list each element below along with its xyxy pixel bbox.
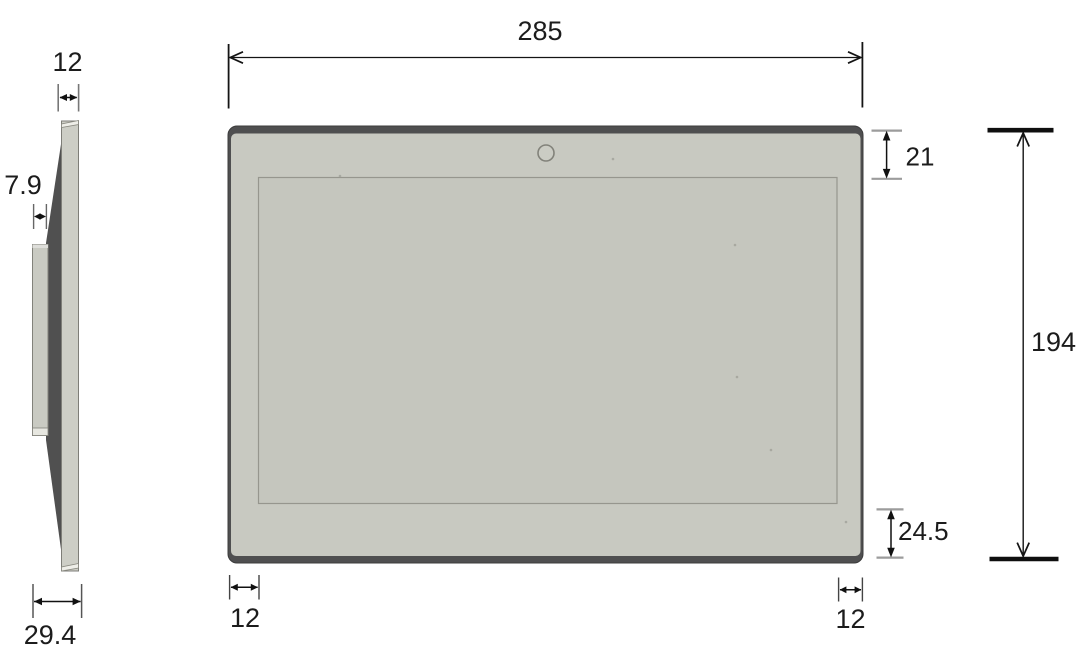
speck bbox=[734, 244, 737, 247]
dim-overall-depth-arrow-left bbox=[34, 598, 42, 606]
dim-overall-depth: 29.4 bbox=[24, 584, 82, 650]
speck bbox=[612, 158, 615, 161]
dim-side-thickness: 12 bbox=[52, 47, 82, 112]
screen-area bbox=[259, 178, 838, 504]
drawing-canvas: 12 7.9 29.4 bbox=[0, 0, 1080, 657]
dim-side-thickness-arrow-left bbox=[60, 94, 68, 101]
side-back-wedge bbox=[46, 131, 63, 564]
dim-rear-protrusion: 7.9 bbox=[4, 170, 46, 229]
dim-bottom-bezel-arrow-down bbox=[887, 548, 895, 558]
dim-height-label: 194 bbox=[1031, 327, 1076, 357]
dim-bottom-bezel-arrow-up bbox=[887, 510, 895, 520]
dim-bl-label: 12 bbox=[230, 603, 260, 633]
dim-side-thickness-arrow-right bbox=[70, 94, 78, 101]
speck bbox=[770, 449, 773, 452]
speck bbox=[339, 175, 342, 178]
dim-overall-depth-label: 29.4 bbox=[24, 620, 77, 650]
dim-top-bezel: 21 bbox=[872, 131, 935, 179]
dim-bottom-bezel-label: 24.5 bbox=[898, 516, 949, 546]
dim-side-thickness-label: 12 bbox=[52, 47, 82, 77]
dim-br-arrow-right bbox=[855, 586, 862, 593]
dim-top-bezel-arrow-down bbox=[883, 169, 891, 179]
dim-rear-protrusion-label: 7.9 bbox=[4, 170, 42, 200]
dim-br-arrow-left bbox=[840, 586, 847, 593]
side-rear-module bbox=[33, 245, 49, 436]
dim-bl-arrow-left bbox=[231, 584, 238, 591]
dim-front-width-label: 285 bbox=[517, 16, 562, 46]
dim-bottom-right-margin: 12 bbox=[835, 578, 865, 635]
dim-overall-depth-arrow-right bbox=[73, 598, 81, 606]
speck bbox=[845, 521, 848, 524]
dim-bottom-left-margin: 12 bbox=[230, 575, 260, 633]
side-rear-module-top-cap bbox=[33, 245, 49, 249]
dim-top-bezel-arrow-up bbox=[883, 131, 891, 141]
dim-top-bezel-label: 21 bbox=[906, 142, 935, 172]
speck bbox=[736, 376, 739, 379]
side-front-panel bbox=[62, 121, 79, 571]
dim-rear-protrusion-arrow-right bbox=[40, 213, 47, 219]
dim-overall-height: 194 bbox=[988, 130, 1077, 559]
front-view bbox=[228, 126, 863, 563]
dim-front-width: 285 bbox=[229, 16, 863, 109]
dim-br-label: 12 bbox=[835, 604, 865, 634]
dimension-drawing: 12 7.9 29.4 bbox=[0, 0, 1080, 657]
camera-hole-icon bbox=[538, 145, 554, 161]
side-rear-module-bottom-cap bbox=[33, 428, 49, 436]
dim-bottom-bezel: 24.5 bbox=[877, 509, 949, 557]
dim-bl-arrow-right bbox=[251, 584, 258, 591]
